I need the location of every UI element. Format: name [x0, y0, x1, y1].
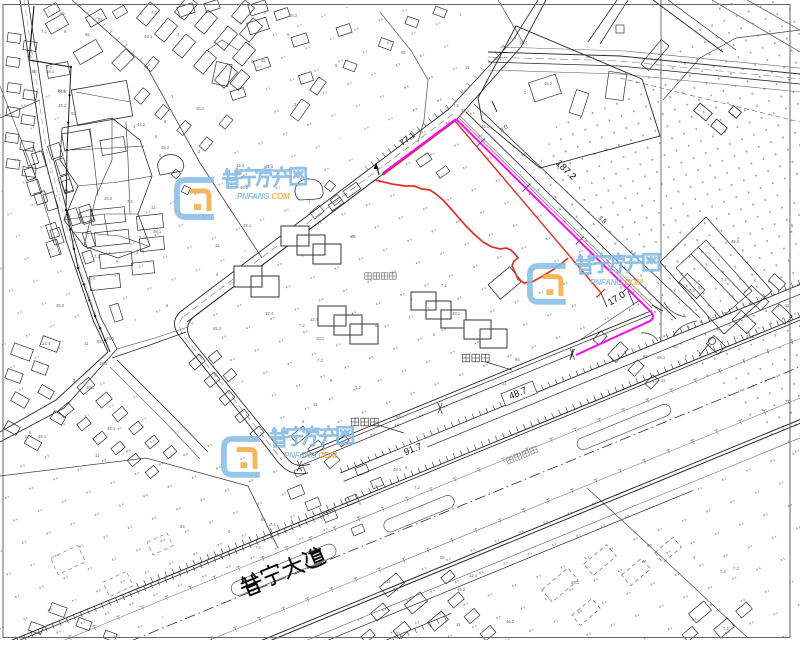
svg-text:11: 11: [425, 306, 430, 311]
svg-text:45.2: 45.2: [457, 587, 466, 592]
svg-text:11: 11: [456, 622, 461, 627]
svg-text:7.2: 7.2: [733, 566, 739, 571]
svg-text:11: 11: [502, 381, 507, 386]
svg-text:11: 11: [95, 453, 100, 458]
svg-text:65: 65: [401, 50, 406, 55]
svg-text:PNFANG.COM: PNFANG.COM: [284, 451, 337, 460]
svg-text:11: 11: [261, 58, 266, 63]
svg-text:45.2: 45.2: [746, 334, 755, 339]
svg-text:7.2: 7.2: [393, 587, 399, 592]
svg-text:65: 65: [261, 517, 266, 522]
svg-text:48.1: 48.1: [38, 434, 47, 439]
svg-text:48.1: 48.1: [316, 336, 325, 341]
svg-text:7.2: 7.2: [355, 385, 361, 390]
svg-text:48.1: 48.1: [243, 223, 252, 228]
svg-text:12.4: 12.4: [236, 163, 245, 168]
svg-text:48.1: 48.1: [99, 361, 108, 366]
svg-text:48.1: 48.1: [571, 580, 580, 585]
svg-text:65: 65: [515, 357, 520, 362]
svg-text:48.1: 48.1: [393, 467, 402, 472]
svg-text:65: 65: [71, 111, 76, 116]
svg-text:PNFANG.COM: PNFANG.COM: [237, 192, 290, 201]
svg-text:12.4: 12.4: [469, 573, 478, 578]
svg-text:7.2: 7.2: [441, 283, 447, 288]
svg-text:48.1: 48.1: [46, 69, 55, 74]
svg-text:65: 65: [98, 17, 103, 22]
svg-text:7.2: 7.2: [41, 29, 47, 34]
svg-text:7.2: 7.2: [270, 522, 276, 527]
svg-text:7.2: 7.2: [317, 358, 323, 363]
svg-text:12.4: 12.4: [42, 341, 51, 346]
svg-text:45.2: 45.2: [104, 196, 113, 201]
svg-text:65: 65: [440, 555, 445, 560]
svg-text:65: 65: [673, 344, 678, 349]
svg-text:65: 65: [698, 285, 703, 290]
svg-text:11: 11: [84, 341, 89, 346]
svg-text:45.2: 45.2: [106, 336, 115, 341]
svg-text:48.1: 48.1: [107, 426, 116, 431]
svg-text:45.2: 45.2: [544, 81, 553, 86]
svg-text:7.2: 7.2: [414, 485, 420, 490]
svg-text:12.4: 12.4: [519, 40, 528, 45]
svg-text:65: 65: [97, 339, 102, 344]
svg-text:65: 65: [521, 152, 526, 157]
svg-text:48.1: 48.1: [586, 54, 595, 59]
svg-text:45.2: 45.2: [731, 239, 740, 244]
svg-text:7.2: 7.2: [151, 10, 157, 15]
svg-text:11: 11: [386, 579, 391, 584]
svg-text:65: 65: [647, 543, 652, 548]
svg-text:65: 65: [180, 524, 185, 529]
svg-text:12.4: 12.4: [265, 311, 274, 316]
svg-text:45.2: 45.2: [56, 303, 65, 308]
svg-text:7.2: 7.2: [299, 323, 305, 328]
svg-text:7.2: 7.2: [127, 199, 133, 204]
svg-text:11: 11: [313, 402, 318, 407]
svg-text:PNFANG.COM: PNFANG.COM: [590, 278, 643, 287]
svg-text:7.2: 7.2: [652, 380, 658, 385]
svg-text:45.2: 45.2: [481, 124, 490, 129]
svg-text:45.2: 45.2: [58, 103, 67, 108]
svg-text:48.1: 48.1: [452, 311, 461, 316]
svg-text:7.2: 7.2: [453, 103, 459, 108]
svg-text:65: 65: [351, 234, 356, 239]
svg-text:12.4: 12.4: [493, 56, 502, 61]
svg-text:45.2: 45.2: [289, 13, 298, 18]
svg-text:12.4: 12.4: [87, 276, 96, 281]
svg-text:11: 11: [465, 65, 470, 70]
svg-text:11: 11: [215, 243, 220, 248]
svg-text:48.1: 48.1: [144, 34, 153, 39]
svg-text:11: 11: [396, 631, 401, 636]
svg-text:7.2: 7.2: [721, 277, 727, 282]
svg-text:48.1: 48.1: [86, 385, 95, 390]
svg-text:7.2: 7.2: [723, 626, 729, 631]
svg-text:11: 11: [151, 205, 156, 210]
svg-text:65: 65: [85, 32, 90, 37]
svg-text:45.2: 45.2: [213, 326, 222, 331]
svg-text:45.2: 45.2: [196, 106, 205, 111]
svg-text:7.2: 7.2: [139, 235, 145, 240]
svg-text:45.2: 45.2: [161, 145, 170, 150]
svg-text:11: 11: [661, 378, 666, 383]
svg-text:65: 65: [60, 11, 65, 16]
svg-text:48.1: 48.1: [461, 108, 470, 113]
svg-text:45.2: 45.2: [506, 619, 515, 624]
svg-text:48.1: 48.1: [657, 355, 666, 360]
svg-text:65: 65: [27, 54, 32, 59]
svg-text:7.2: 7.2: [94, 254, 100, 259]
svg-text:7.2: 7.2: [216, 553, 222, 558]
svg-text:12.4: 12.4: [57, 88, 66, 93]
svg-text:7.2: 7.2: [720, 569, 726, 574]
svg-text:48.1: 48.1: [153, 229, 162, 234]
svg-text:7.2: 7.2: [689, 288, 695, 293]
svg-text:65: 65: [643, 354, 648, 359]
svg-text:12.4: 12.4: [24, 434, 33, 439]
svg-text:65: 65: [32, 69, 37, 74]
svg-text:45.2: 45.2: [137, 122, 146, 127]
svg-text:11: 11: [785, 303, 790, 308]
svg-text:7.2: 7.2: [255, 545, 261, 550]
svg-text:12.4: 12.4: [310, 317, 319, 322]
svg-text:65: 65: [396, 414, 401, 419]
